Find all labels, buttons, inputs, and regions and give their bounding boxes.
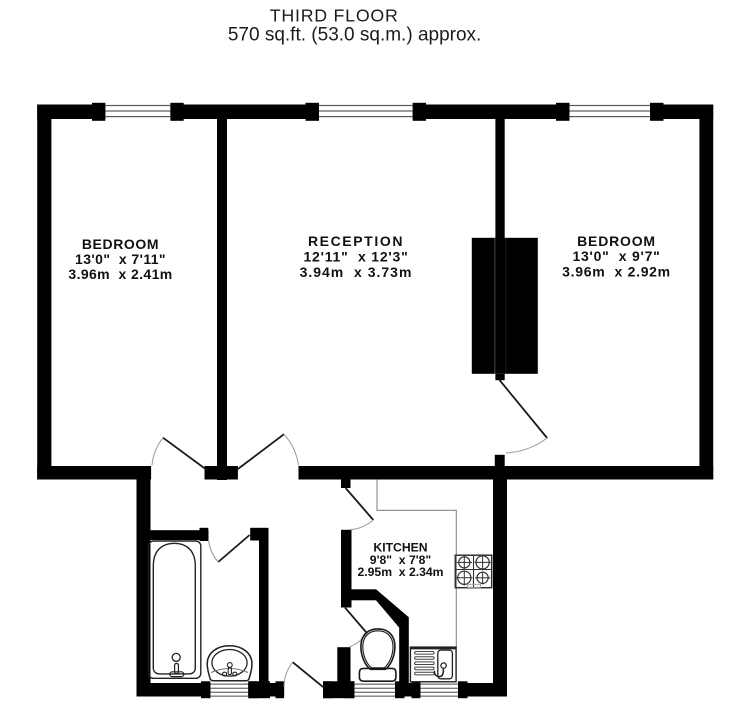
svg-text:3.94m x 3.73m: 3.94m x 3.73m [300, 264, 413, 280]
svg-text:THIRD FLOOR: THIRD FLOOR [270, 6, 399, 26]
svg-text:13'0" x 9'7": 13'0" x 9'7" [572, 248, 660, 264]
svg-text:2.95m x 2.34m: 2.95m x 2.34m [357, 565, 443, 579]
svg-text:BEDROOM: BEDROOM [577, 233, 656, 249]
svg-text:3.96m x 2.41m: 3.96m x 2.41m [68, 266, 172, 282]
svg-text:RECEPTION: RECEPTION [308, 233, 404, 249]
svg-text:3.96m x 2.92m: 3.96m x 2.92m [562, 263, 671, 279]
svg-text:12'11" x 12'3": 12'11" x 12'3" [303, 248, 408, 264]
svg-text:13'0" x 7'11": 13'0" x 7'11" [75, 251, 166, 267]
svg-text:570 sq.ft. (53.0 sq.m.) approx: 570 sq.ft. (53.0 sq.m.) approx. [228, 24, 481, 45]
svg-text:BEDROOM: BEDROOM [82, 236, 159, 252]
